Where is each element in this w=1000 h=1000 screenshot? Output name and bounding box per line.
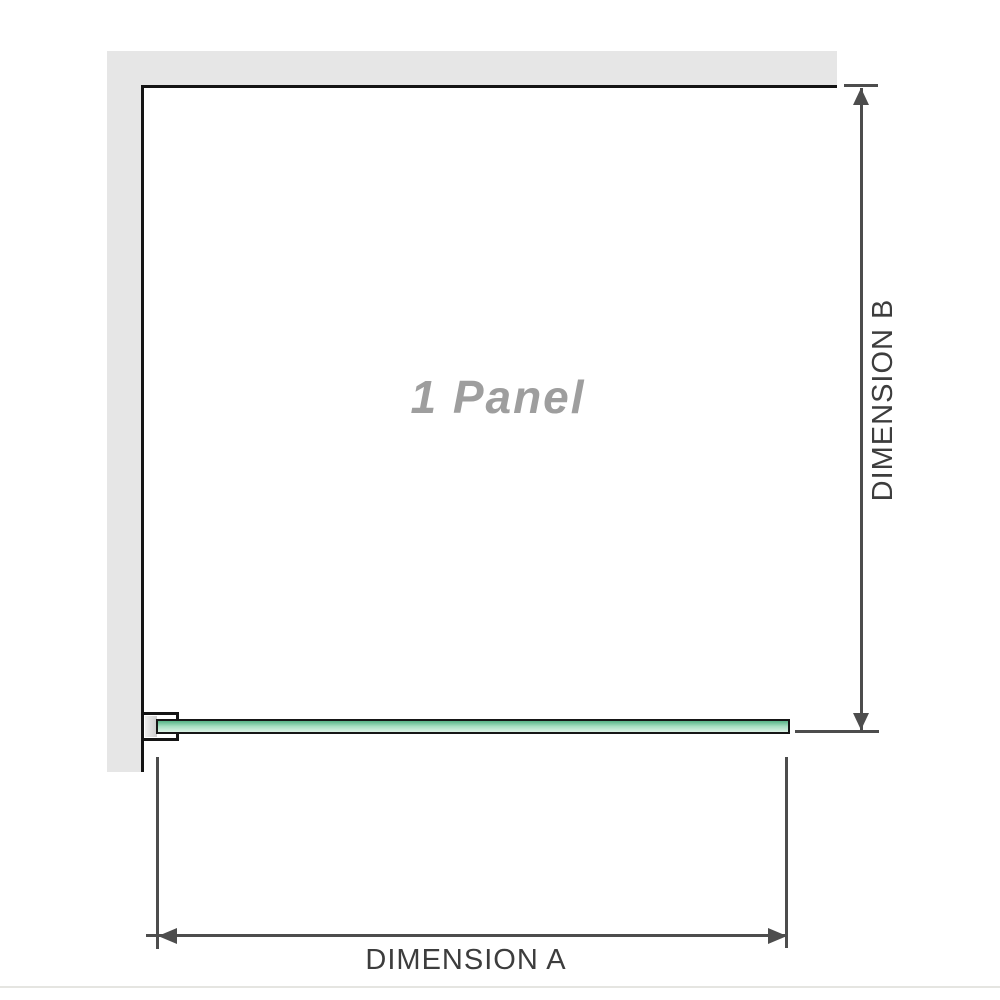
arrow-down-icon xyxy=(853,713,869,730)
dimension-a-label: DIMENSION A xyxy=(336,942,596,978)
dimension-b-line xyxy=(860,88,863,731)
glass-panel xyxy=(156,719,790,734)
panel-area-border-left xyxy=(141,85,144,772)
arrow-up-icon xyxy=(853,88,869,105)
panel-area-border-top xyxy=(141,85,837,88)
dimension-a-line xyxy=(158,934,787,937)
diagram-canvas: 1 Panel DIMENSION B DIMENSION A xyxy=(0,0,1000,1000)
dimension-b-label: DIMENSION B xyxy=(865,270,901,530)
dimension-a-tick-left xyxy=(146,934,158,937)
panel-count-label: 1 Panel xyxy=(348,366,648,428)
wall-top-strip xyxy=(107,51,837,86)
arrow-right-icon xyxy=(768,928,787,944)
bottom-divider xyxy=(0,986,1000,988)
wall-left-strip xyxy=(107,51,143,772)
arrow-left-icon xyxy=(158,928,177,944)
dimension-a-extension-left xyxy=(156,757,159,949)
dimension-b-tick-bottom xyxy=(795,730,879,733)
dimension-a-extension-right xyxy=(785,757,788,948)
dimension-b-tick-top xyxy=(844,84,878,87)
